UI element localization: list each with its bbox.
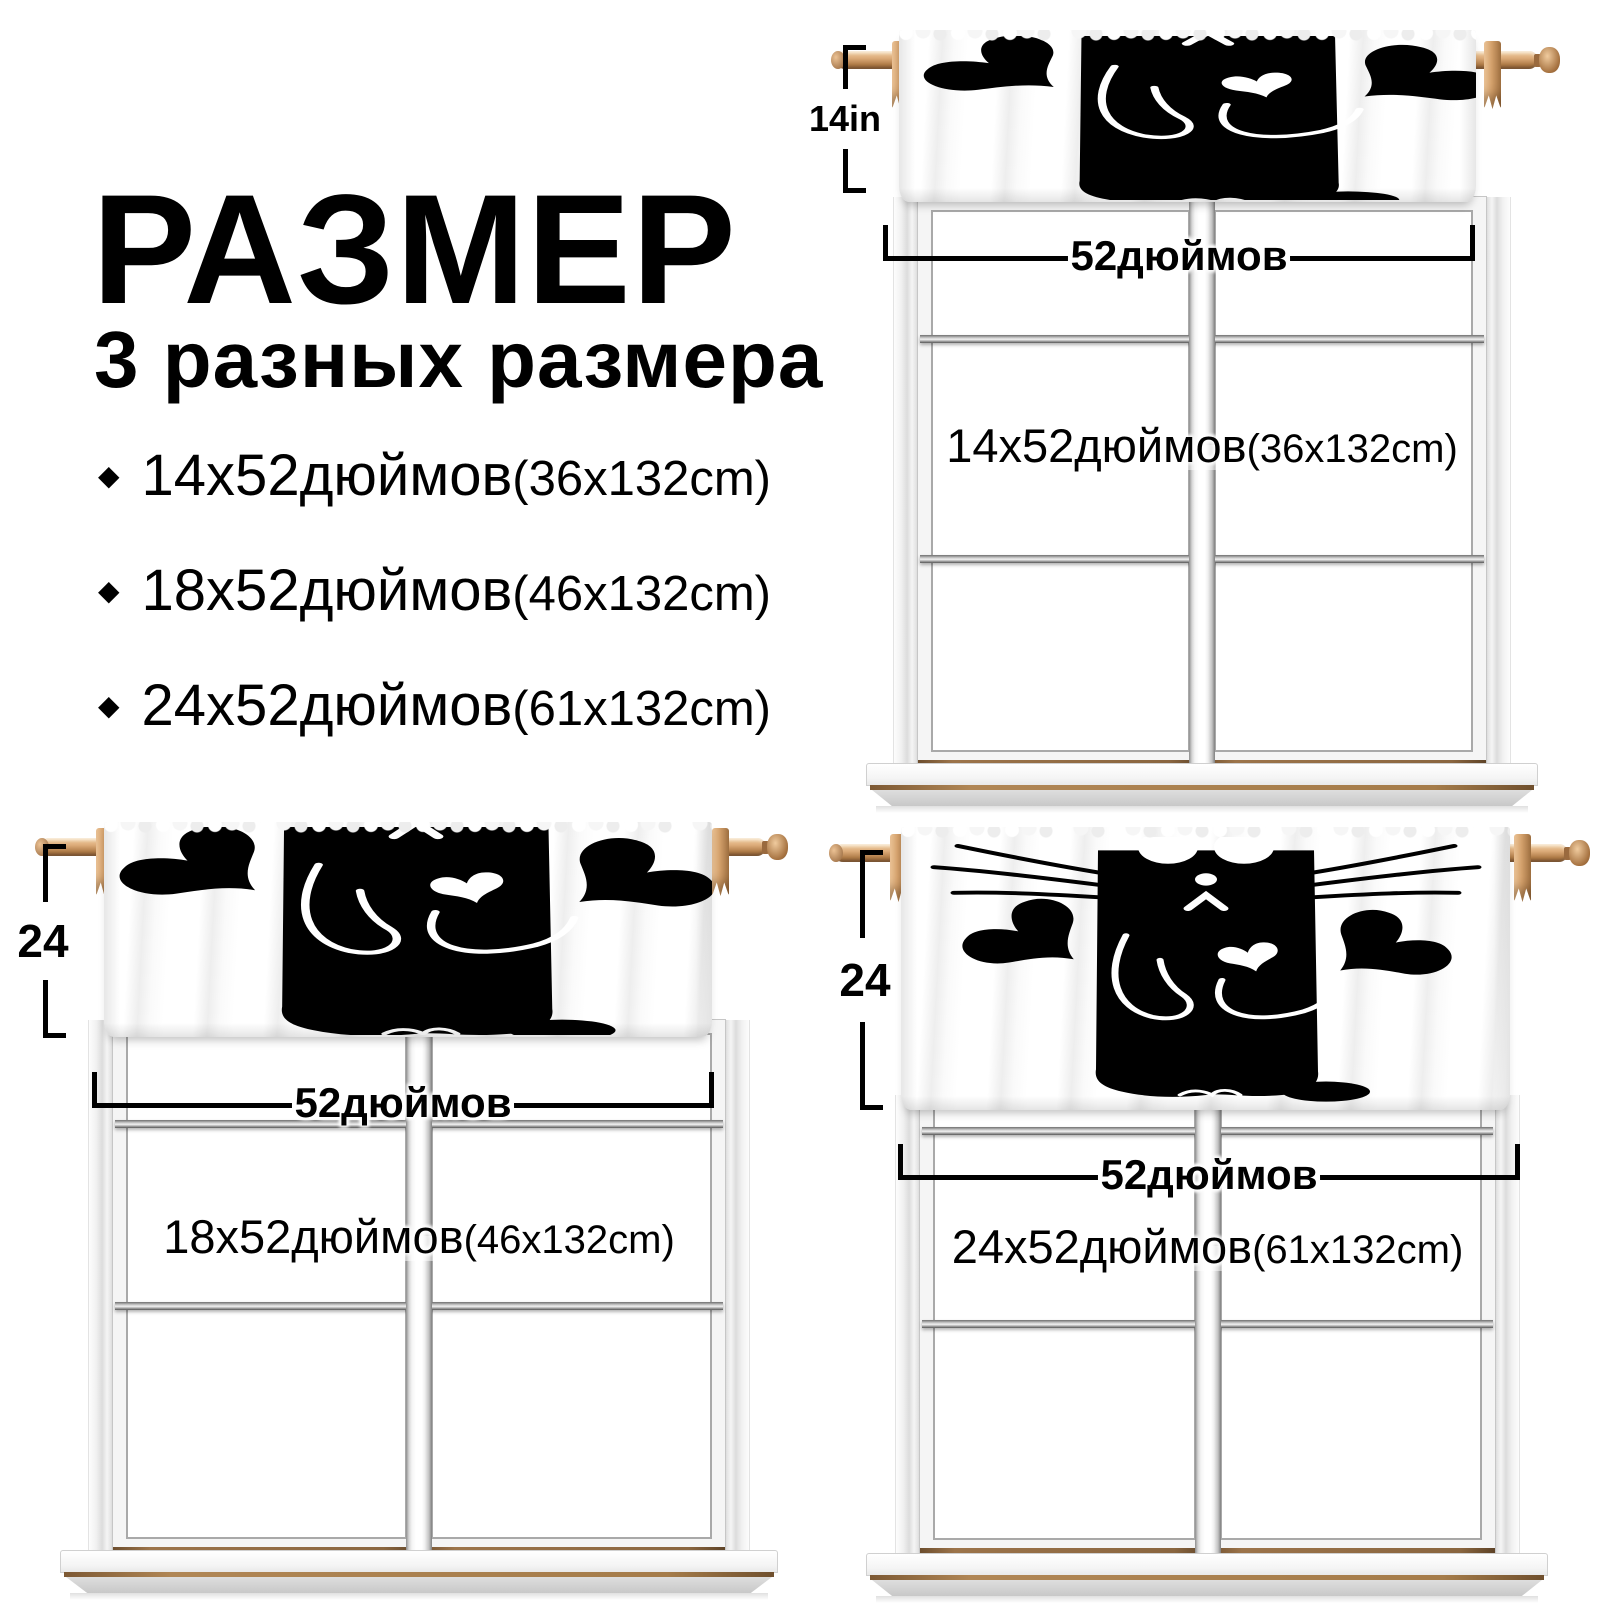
window-mockup-bottom-right: 24 52дюймов 24х52дюймов(61x132cm) xyxy=(808,808,1600,1600)
height-dimension-label: 24 xyxy=(8,918,78,964)
cat-valance-18in xyxy=(104,822,712,1037)
size-caption: 14х52дюймов(36x132cm) xyxy=(893,419,1511,473)
size-text: 18х52дюймов xyxy=(142,558,513,623)
curtain-rod-right-finial xyxy=(700,828,788,904)
window-mockup-bottom-left: 24 52дюймов 18х52дюймов(46x132cm) xyxy=(0,808,800,1600)
window-jamb xyxy=(1485,197,1511,765)
black-cat-heart-icon xyxy=(899,36,1476,200)
cat-valance-14in xyxy=(899,30,1476,202)
window-mullion xyxy=(1189,197,1215,765)
page-title: РАЗМЕР xyxy=(92,171,737,330)
width-dimension: 52дюймов xyxy=(92,1072,714,1108)
size-list-item: ◆18х52дюймов(46x132cm) xyxy=(98,557,771,624)
size-caption: 24х52дюймов(61x132cm) xyxy=(895,1220,1520,1274)
size-caption: 18х52дюймов(46x132cm) xyxy=(88,1210,750,1264)
height-dimension: 24 xyxy=(830,850,914,1110)
diamond-bullet-icon: ◆ xyxy=(98,460,120,491)
window-sill xyxy=(60,1550,778,1600)
height-dimension: 24 xyxy=(8,844,92,1038)
size-metric-text: (46x132cm) xyxy=(512,567,771,621)
window-mockup-top-right: 14in 52дюймов 14х52дюймов(36x132cm) xyxy=(820,25,1560,810)
cat-valance-24in xyxy=(901,827,1510,1110)
window-frame xyxy=(893,197,1511,765)
diamond-bullet-icon: ◆ xyxy=(98,575,120,606)
window-jamb xyxy=(893,197,919,765)
black-cat-heart-icon xyxy=(104,827,712,1035)
curtain-rod-right-finial xyxy=(1502,834,1590,910)
size-text: 24х52дюймов xyxy=(142,673,513,738)
diamond-bullet-icon: ◆ xyxy=(98,690,120,721)
size-text: 14х52дюймов xyxy=(142,443,513,508)
height-dimension: 14in xyxy=(800,45,890,193)
size-metric-text: (61x132cm) xyxy=(512,682,771,736)
window-sill xyxy=(866,1553,1548,1603)
width-dimension-label: 52дюймов xyxy=(1070,235,1287,277)
window-sill xyxy=(866,763,1538,813)
width-dimension: 52дюймов xyxy=(883,225,1475,261)
window-glass xyxy=(918,197,1486,765)
curtain-rod-right-finial xyxy=(1472,41,1560,117)
black-cat-heart-icon xyxy=(906,837,1506,1105)
window-sash xyxy=(1201,197,1486,765)
window-sash xyxy=(918,197,1203,765)
width-dimension-label: 52дюймов xyxy=(1100,1154,1317,1196)
width-dimension: 52дюймов xyxy=(898,1144,1520,1180)
window-jamb xyxy=(724,1020,750,1552)
height-dimension-label: 24 xyxy=(830,957,900,1003)
page-subtitle: 3 разных размера xyxy=(94,314,823,406)
height-dimension-label: 14in xyxy=(800,101,890,137)
width-dimension-label: 52дюймов xyxy=(294,1082,511,1124)
size-metric-text: (36x132cm) xyxy=(512,452,771,506)
size-list-item: ◆24х52дюймов(61x132cm) xyxy=(98,672,771,739)
size-list-item: ◆14х52дюймов(36x132cm) xyxy=(98,442,771,509)
